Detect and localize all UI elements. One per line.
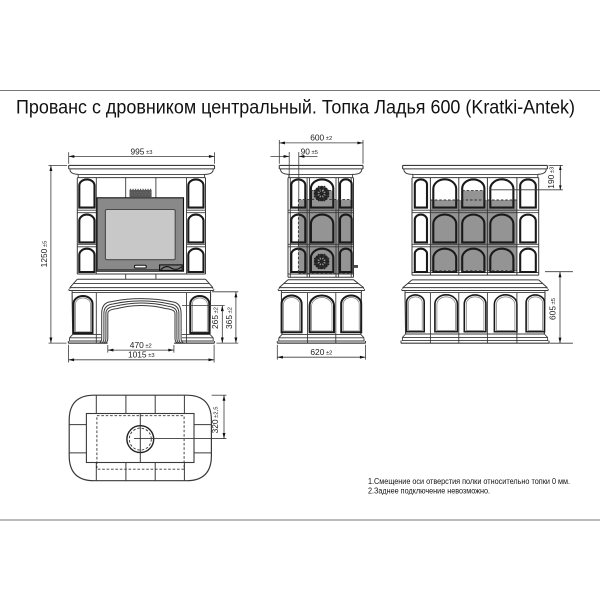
- svg-text:2.Заднее подключение невозможн: 2.Заднее подключение невозможно.: [368, 487, 490, 496]
- svg-text:1.Смещение оси отверстия полки: 1.Смещение оси отверстия полки относител…: [368, 477, 570, 486]
- svg-text:Прованс с дровником центральны: Прованс с дровником центральный. Топка Л…: [16, 98, 575, 119]
